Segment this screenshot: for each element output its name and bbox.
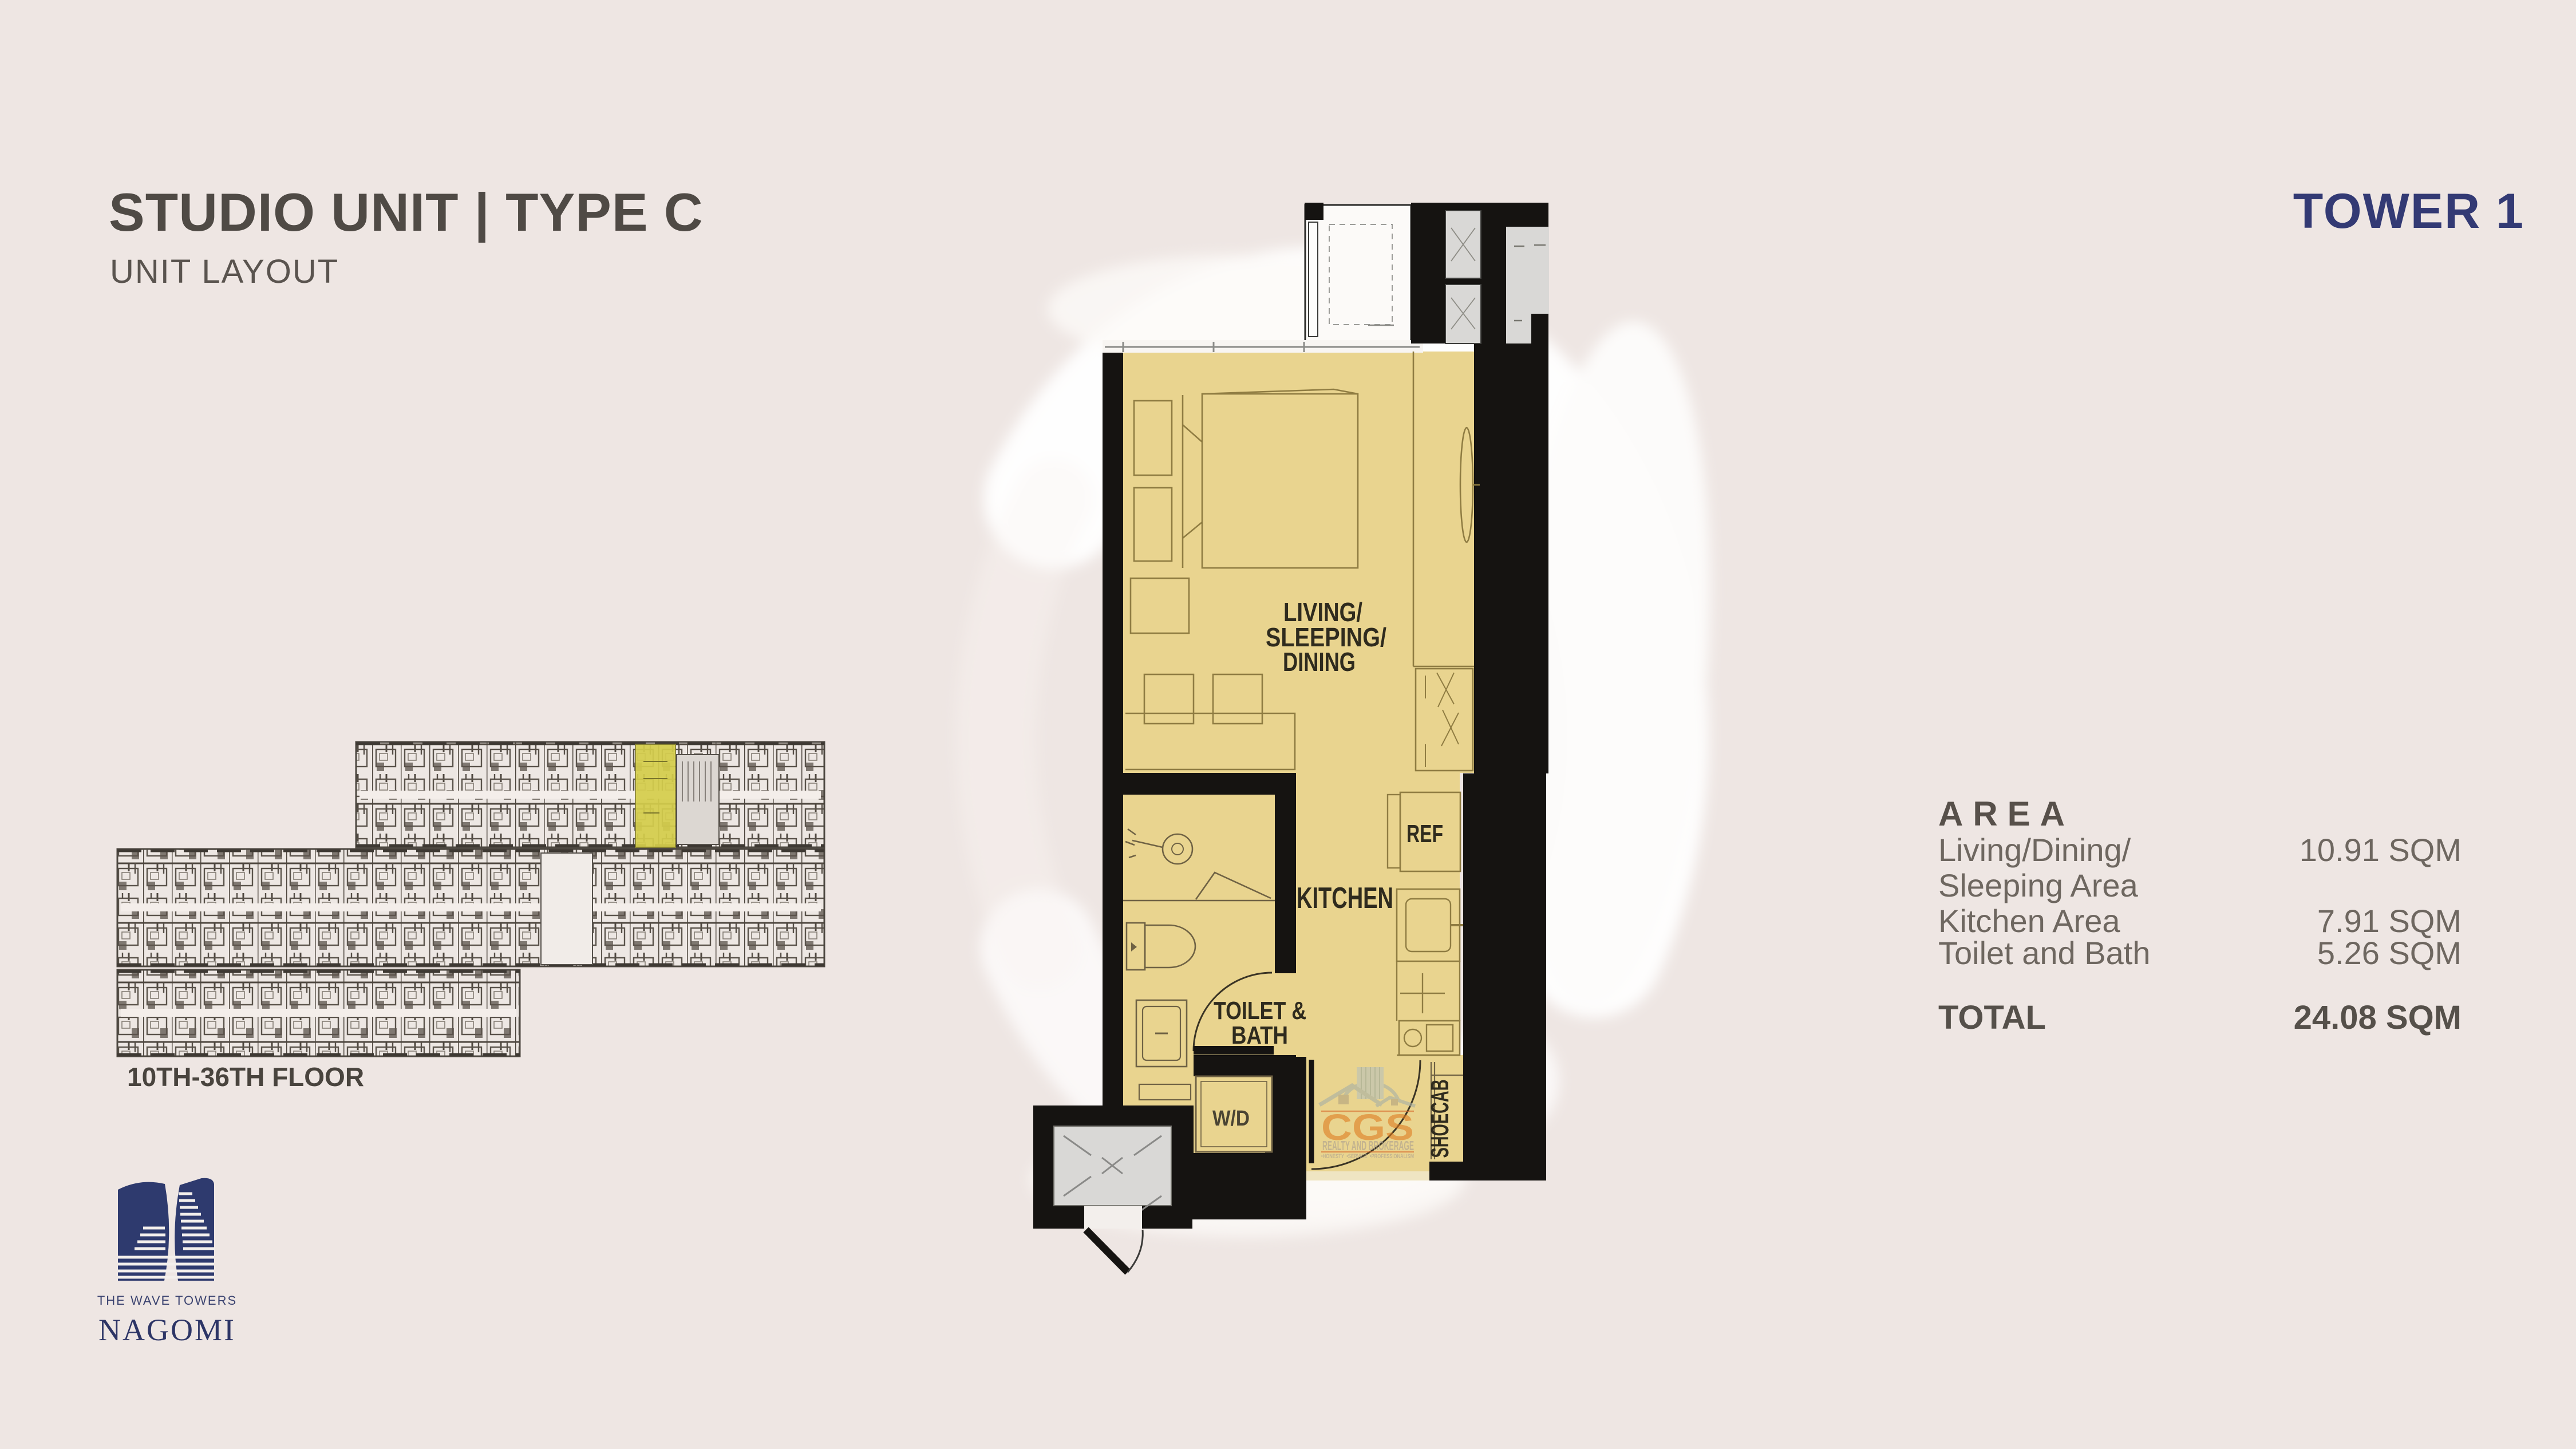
- svg-text:TOTAL: TOTAL: [1938, 999, 2046, 1036]
- svg-text:Kitchen Area: Kitchen Area: [1938, 903, 2120, 939]
- svg-text:Sleeping Area: Sleeping Area: [1938, 867, 2139, 903]
- svg-text:5.26 SQM: 5.26 SQM: [2317, 935, 2462, 971]
- svg-text:7.91 SQM: 7.91 SQM: [2317, 903, 2462, 939]
- svg-text:THE WAVE TOWERS: THE WAVE TOWERS: [97, 1293, 237, 1308]
- svg-text:REF: REF: [1406, 820, 1443, 848]
- svg-text:TOILET &: TOILET &: [1214, 997, 1306, 1025]
- svg-text:REALTY AND BROKERAGE: REALTY AND BROKERAGE: [1322, 1138, 1414, 1153]
- svg-text:Toilet and Bath: Toilet and Bath: [1938, 935, 2150, 971]
- svg-text:10TH-36TH FLOOR: 10TH-36TH FLOOR: [127, 1062, 364, 1092]
- svg-text:UNIT LAYOUT: UNIT LAYOUT: [110, 253, 339, 290]
- svg-text:DINING: DINING: [1283, 647, 1356, 677]
- svg-text:BATH: BATH: [1231, 1021, 1288, 1049]
- svg-text:Living/Dining/: Living/Dining/: [1938, 832, 2131, 868]
- svg-text:STUDIO UNIT | TYPE C: STUDIO UNIT | TYPE C: [109, 182, 704, 243]
- svg-text:TOWER 1: TOWER 1: [2293, 184, 2524, 239]
- svg-text:W/D: W/D: [1212, 1107, 1250, 1131]
- svg-text:24.08 SQM: 24.08 SQM: [2294, 999, 2462, 1036]
- svg-text:•HONESTY •SERVICE •PROFESSIO: •HONESTY •SERVICE •PROFESSIONALISM: [1321, 1153, 1414, 1160]
- svg-text:NAGOMI: NAGOMI: [98, 1313, 236, 1347]
- svg-text:SHOECAB: SHOECAB: [1426, 1080, 1454, 1158]
- svg-text:10.91 SQM: 10.91 SQM: [2300, 832, 2462, 868]
- svg-text:AREA: AREA: [1938, 795, 2075, 833]
- svg-text:KITCHEN: KITCHEN: [1297, 882, 1393, 915]
